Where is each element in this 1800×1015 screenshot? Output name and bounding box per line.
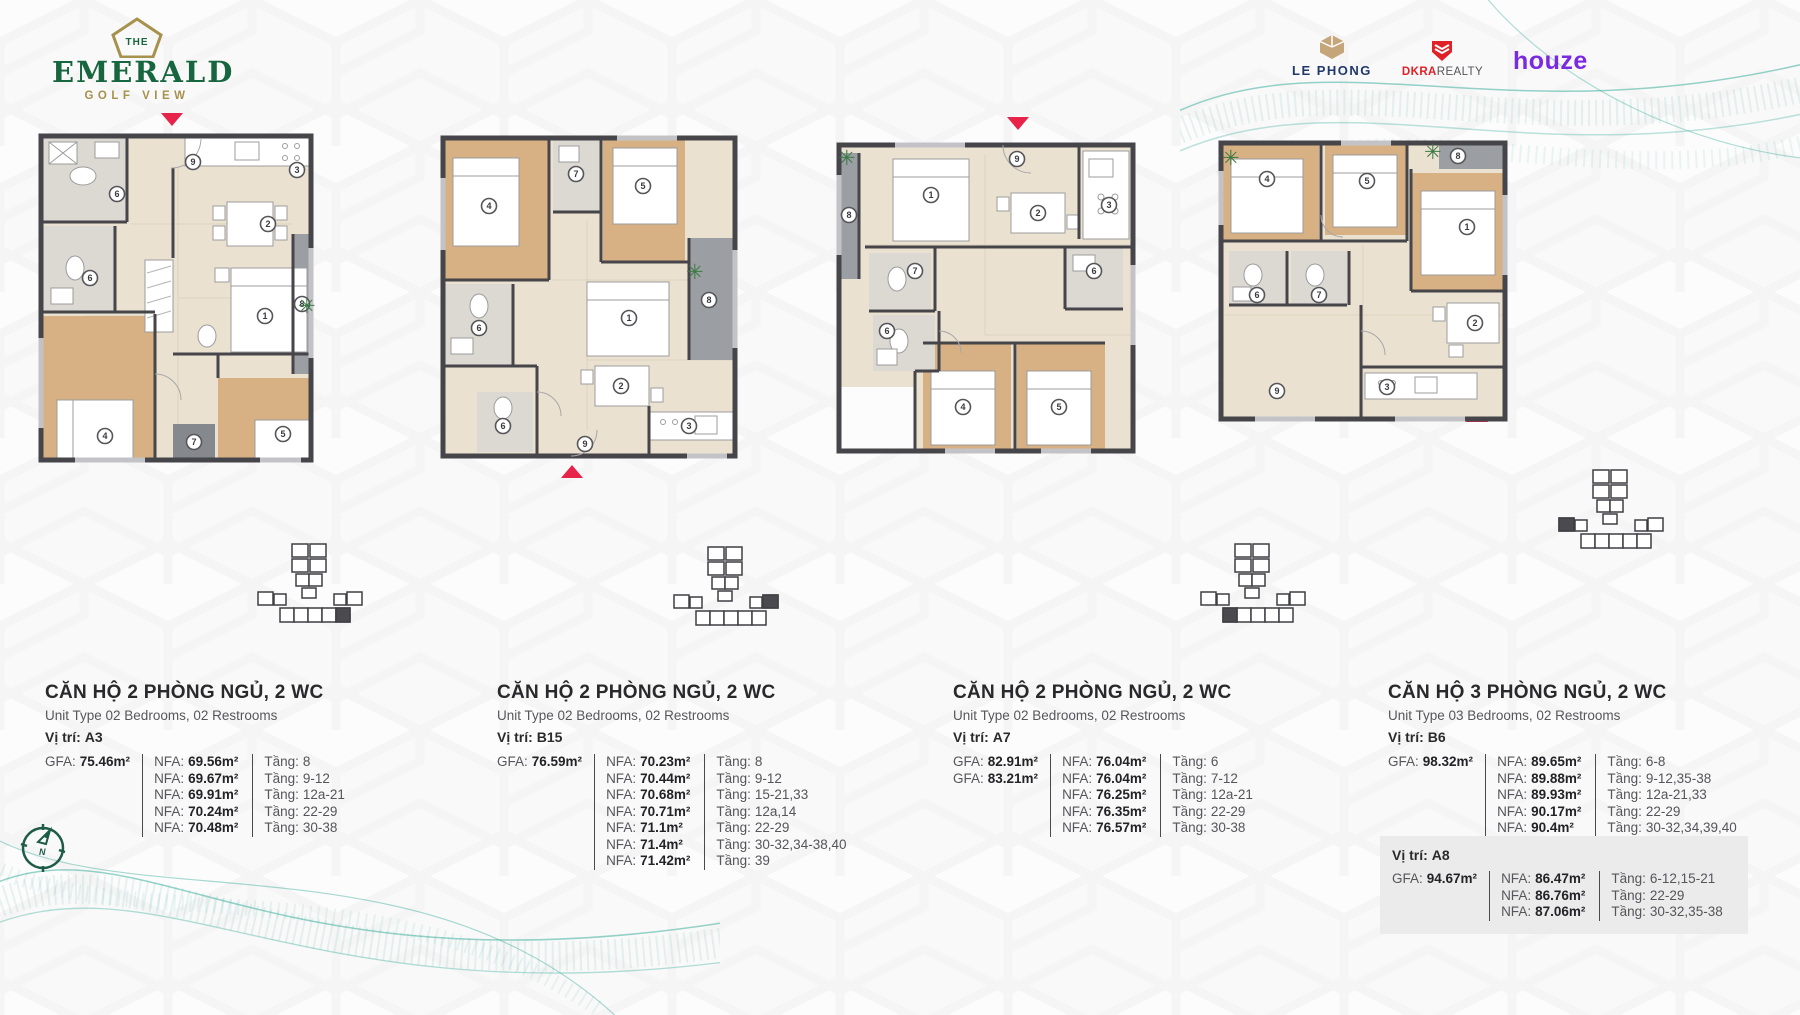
unit1-specs: CĂN HỘ 2 PHÒNG NGỦ, 2 WC Unit Type 02 Be… [45, 682, 385, 837]
svg-text:2: 2 [265, 219, 270, 229]
nfa-row: NFA:87.06m² [1501, 904, 1585, 921]
unit1-title: CĂN HỘ 2 PHÒNG NGỦ, 2 WC [45, 682, 385, 704]
floor-row: Tầng:6 [1172, 754, 1253, 771]
svg-text:6: 6 [884, 326, 889, 336]
nfa-row: NFA:76.04m² [1062, 754, 1146, 771]
floor-row: Tầng:8 [264, 754, 345, 771]
unit3-spec-table: GFA:82.91m²GFA:83.21m² NFA:76.04m²NFA:76… [953, 754, 1298, 837]
nfa-row: NFA:71.1m² [606, 820, 690, 837]
nfa-row: NFA:70.71m² [606, 804, 690, 821]
unit4-extra-location: Vị trí:A8 [1392, 847, 1748, 863]
floor-row: Tầng:6-12,15-21 [1611, 871, 1722, 888]
svg-text:7: 7 [912, 266, 917, 276]
floor-row: Tầng:8 [716, 754, 846, 771]
floor-plan-b6: 4 5 8 1 6 7 2 3 9 [1215, 135, 1511, 432]
nfa-row: NFA:89.93m² [1497, 787, 1581, 804]
svg-text:6: 6 [1091, 266, 1096, 276]
lephong-label: LE PHONG [1292, 63, 1372, 78]
floor-plan-b15: 4 7 5 8 6 1 2 3 6 9 [437, 130, 741, 469]
svg-text:9: 9 [190, 157, 195, 167]
floor-row: Tầng:15-21,33 [716, 787, 846, 804]
dkra-label: DKRAREALTY [1402, 66, 1483, 78]
floor-row: Tầng:30-32,34,39,40 [1607, 820, 1736, 837]
houze-label: houze [1513, 49, 1588, 74]
key-plan-a7 [1195, 542, 1311, 642]
floor-row: Tầng:30-38 [1172, 820, 1253, 837]
floor-column: Tầng:6-12,15-21Tầng:22-29Tầng:30-32,35-3… [1599, 871, 1734, 921]
svg-text:1: 1 [626, 313, 631, 323]
unit4-extra-spec-table: GFA:94.67m² NFA:86.47m²NFA:86.76m²NFA:87… [1392, 871, 1748, 921]
svg-text:8: 8 [1455, 151, 1460, 161]
svg-text:5: 5 [1056, 402, 1061, 412]
floor-plan-a3: 9 3 2 6 6 1 8 4 5 7 [35, 128, 317, 469]
floor-column: Tầng:6Tầng:7-12Tầng:12a-21Tầng:22-29Tầng… [1160, 754, 1265, 837]
lephong-logo: LE PHONG [1292, 34, 1372, 78]
floor-row: Tầng:7-12 [1172, 771, 1253, 788]
floor-row: Tầng:9-12,35-38 [1607, 771, 1736, 788]
logo-pentagon-icon: THE [110, 16, 164, 58]
svg-text:5: 5 [640, 181, 645, 191]
unit1-subtitle: Unit Type 02 Bedrooms, 02 Restrooms [45, 708, 385, 723]
unit2-spec-table: GFA:76.59m² NFA:70.23m²NFA:70.44m²NFA:70… [497, 754, 857, 870]
nfa-row: NFA:89.65m² [1497, 754, 1581, 771]
svg-text:2: 2 [618, 381, 623, 391]
key-plan-b15 [668, 545, 784, 645]
unit2-specs: CĂN HỘ 2 PHÒNG NGỦ, 2 WC Unit Type 02 Be… [497, 682, 857, 870]
svg-text:9: 9 [582, 439, 587, 449]
floor-row: Tầng:9-12 [716, 771, 846, 788]
nfa-row: NFA:86.47m² [1501, 871, 1585, 888]
nfa-row: NFA:71.42m² [606, 853, 690, 870]
svg-text:7: 7 [1316, 290, 1321, 300]
svg-text:2: 2 [1035, 208, 1040, 218]
nfa-column: NFA:89.65m²NFA:89.88m²NFA:89.93m²NFA:90.… [1485, 754, 1593, 837]
floor-row: Tầng:30-32,35-38 [1611, 904, 1722, 921]
plant-icon: ✳ [1424, 142, 1442, 163]
svg-text:5: 5 [1364, 176, 1369, 186]
gfa-row: GFA:76.59m² [497, 754, 582, 771]
unit2-subtitle: Unit Type 02 Bedrooms, 02 Restrooms [497, 708, 857, 723]
svg-text:4: 4 [102, 431, 107, 441]
nfa-row: NFA:76.04m² [1062, 771, 1146, 788]
unit1-location: Vị trí:A3 [45, 729, 385, 745]
gfa-column: GFA:82.91m²GFA:83.21m² [953, 754, 1050, 787]
svg-text:3: 3 [1384, 382, 1389, 392]
floor-row: Tầng:6-8 [1607, 754, 1736, 771]
gfa-row: GFA:82.91m² [953, 754, 1038, 771]
svg-text:6: 6 [476, 323, 481, 333]
nfa-row: NFA:86.76m² [1501, 888, 1585, 905]
gfa-column: GFA:98.32m² [1388, 754, 1485, 771]
key-plan-b6 [1553, 468, 1669, 568]
svg-text:6: 6 [114, 189, 119, 199]
partner-logos: LE PHONG DKRAREALTY houze [1292, 34, 1588, 78]
svg-text:6: 6 [87, 273, 92, 283]
brand-tagline: GOLF VIEW [52, 90, 222, 102]
unit4-subtitle: Unit Type 03 Bedrooms, 02 Restrooms [1388, 708, 1798, 723]
gfa-row: GFA:98.32m² [1388, 754, 1473, 771]
floor-row: Tầng:9-12 [264, 771, 345, 788]
dkra-rest: REALTY [1437, 66, 1483, 78]
unit3-location: Vị trí:A7 [953, 729, 1298, 745]
nfa-row: NFA:76.25m² [1062, 787, 1146, 804]
svg-text:1: 1 [262, 311, 267, 321]
unit4-spec-table: GFA:98.32m² NFA:89.65m²NFA:89.88m²NFA:89… [1388, 754, 1798, 837]
gfa-column: GFA:94.67m² [1392, 871, 1489, 888]
svg-text:9: 9 [1274, 386, 1279, 396]
nfa-column: NFA:70.23m²NFA:70.44m²NFA:70.68m²NFA:70.… [594, 754, 702, 870]
nfa-row: NFA:69.67m² [154, 771, 238, 788]
gfa-row: GFA:75.46m² [45, 754, 130, 771]
plant-icon: ✳ [1222, 148, 1240, 169]
floor-row: Tầng:12a-21 [264, 787, 345, 804]
plant-icon: ✳ [838, 148, 856, 169]
nfa-row: NFA:70.44m² [606, 771, 690, 788]
svg-text:8: 8 [846, 210, 851, 220]
svg-text:3: 3 [686, 421, 691, 431]
svg-text:5: 5 [280, 429, 285, 439]
floor-row: Tầng:22-29 [1172, 804, 1253, 821]
floor-row: Tầng:12a-21,33 [1607, 787, 1736, 804]
brand-name: EMERALD [52, 55, 222, 89]
floor-row: Tầng:30-38 [264, 820, 345, 837]
compass-icon: N [14, 818, 72, 876]
floor-column: Tầng:8Tầng:9-12Tầng:12a-21Tầng:22-29Tầng… [252, 754, 357, 837]
brand-logo: THE EMERALD GOLF VIEW [52, 16, 222, 102]
nfa-row: NFA:69.56m² [154, 754, 238, 771]
nfa-row: NFA:71.4m² [606, 837, 690, 854]
svg-text:7: 7 [573, 169, 578, 179]
gfa-column: GFA:76.59m² [497, 754, 594, 771]
floor-row: Tầng:22-29 [716, 820, 846, 837]
nfa-column: NFA:76.04m²NFA:76.04m²NFA:76.25m²NFA:76.… [1050, 754, 1158, 837]
svg-text:1: 1 [1464, 222, 1469, 232]
floor-row: Tầng:12a-21 [1172, 787, 1253, 804]
svg-text:8: 8 [706, 295, 711, 305]
floor-row: Tầng:30-32,34-38,40 [716, 837, 846, 854]
north-marker-unit1 [161, 113, 183, 126]
gfa-column: GFA:75.46m² [45, 754, 142, 771]
floor-plan-a7: 8 1 9 2 3 7 6 6 4 5 [835, 135, 1137, 462]
floor-row: Tầng:22-29 [1611, 888, 1722, 905]
unit2-title: CĂN HỘ 2 PHÒNG NGỦ, 2 WC [497, 682, 857, 704]
gfa-row: GFA:94.67m² [1392, 871, 1477, 888]
nfa-row: NFA:76.35m² [1062, 804, 1146, 821]
svg-text:1: 1 [928, 190, 933, 200]
unit1-spec-table: GFA:75.46m² NFA:69.56m²NFA:69.67m²NFA:69… [45, 754, 385, 837]
dkra-bold: DKRA [1402, 66, 1437, 78]
unit4-title: CĂN HỘ 3 PHÒNG NGỦ, 2 WC [1388, 682, 1798, 704]
unit4-specs: CĂN HỘ 3 PHÒNG NGỦ, 2 WC Unit Type 03 Be… [1388, 682, 1798, 837]
brochure-page: THE EMERALD GOLF VIEW LE PHONG DKRAREALT… [0, 0, 1800, 1015]
nfa-row: NFA:70.23m² [606, 754, 690, 771]
svg-text:9: 9 [1014, 154, 1019, 164]
svg-text:3: 3 [1106, 200, 1111, 210]
nfa-column: NFA:86.47m²NFA:86.76m²NFA:87.06m² [1489, 871, 1597, 921]
floor-column: Tầng:8Tầng:9-12Tầng:15-21,33Tầng:12a,14T… [704, 754, 858, 870]
nfa-row: NFA:89.88m² [1497, 771, 1581, 788]
floor-column: Tầng:6-8Tầng:9-12,35-38Tầng:12a-21,33Tần… [1595, 754, 1748, 837]
svg-text:4: 4 [1264, 174, 1269, 184]
dkra-logo: DKRAREALTY [1402, 39, 1483, 78]
nfa-row: NFA:90.4m² [1497, 820, 1581, 837]
gfa-row: GFA:83.21m² [953, 771, 1038, 788]
svg-text:THE: THE [126, 37, 149, 48]
nfa-row: NFA:70.24m² [154, 804, 238, 821]
nfa-row: NFA:90.17m² [1497, 804, 1581, 821]
houze-logo: houze [1513, 49, 1588, 78]
lephong-cube-icon [1318, 34, 1346, 60]
floor-row: Tầng:12a,14 [716, 804, 846, 821]
floor-row: Tầng:22-29 [1607, 804, 1736, 821]
nfa-column: NFA:69.56m²NFA:69.67m²NFA:69.91m²NFA:70.… [142, 754, 250, 837]
unit3-specs: CĂN HỘ 2 PHÒNG NGỦ, 2 WC Unit Type 02 Be… [953, 682, 1298, 837]
unit2-location: Vị trí:B15 [497, 729, 857, 745]
nfa-row: NFA:76.57m² [1062, 820, 1146, 837]
unit3-title: CĂN HỘ 2 PHÒNG NGỦ, 2 WC [953, 682, 1298, 704]
svg-text:4: 4 [960, 402, 965, 412]
nfa-row: NFA:70.68m² [606, 787, 690, 804]
floor-row: Tầng:39 [716, 853, 846, 870]
svg-text:6: 6 [500, 421, 505, 431]
dkra-shield-icon [1429, 39, 1455, 63]
svg-text:3: 3 [294, 165, 299, 175]
unit4-extra-a8-box: Vị trí:A8 GFA:94.67m² NFA:86.47m²NFA:86.… [1380, 836, 1748, 934]
unit4-location: Vị trí:B6 [1388, 729, 1798, 745]
svg-text:N: N [39, 847, 46, 857]
key-plan-a3 [252, 542, 368, 642]
unit3-subtitle: Unit Type 02 Bedrooms, 02 Restrooms [953, 708, 1298, 723]
svg-text:7: 7 [191, 437, 196, 447]
floor-row: Tầng:22-29 [264, 804, 345, 821]
svg-text:2: 2 [1472, 318, 1477, 328]
north-marker-unit3 [1007, 117, 1029, 130]
plant-icon: ✳ [686, 262, 704, 283]
svg-text:4: 4 [486, 201, 491, 211]
plant-icon: ✳ [298, 296, 316, 317]
nfa-row: NFA:70.48m² [154, 820, 238, 837]
svg-text:6: 6 [1254, 290, 1259, 300]
nfa-row: NFA:69.91m² [154, 787, 238, 804]
